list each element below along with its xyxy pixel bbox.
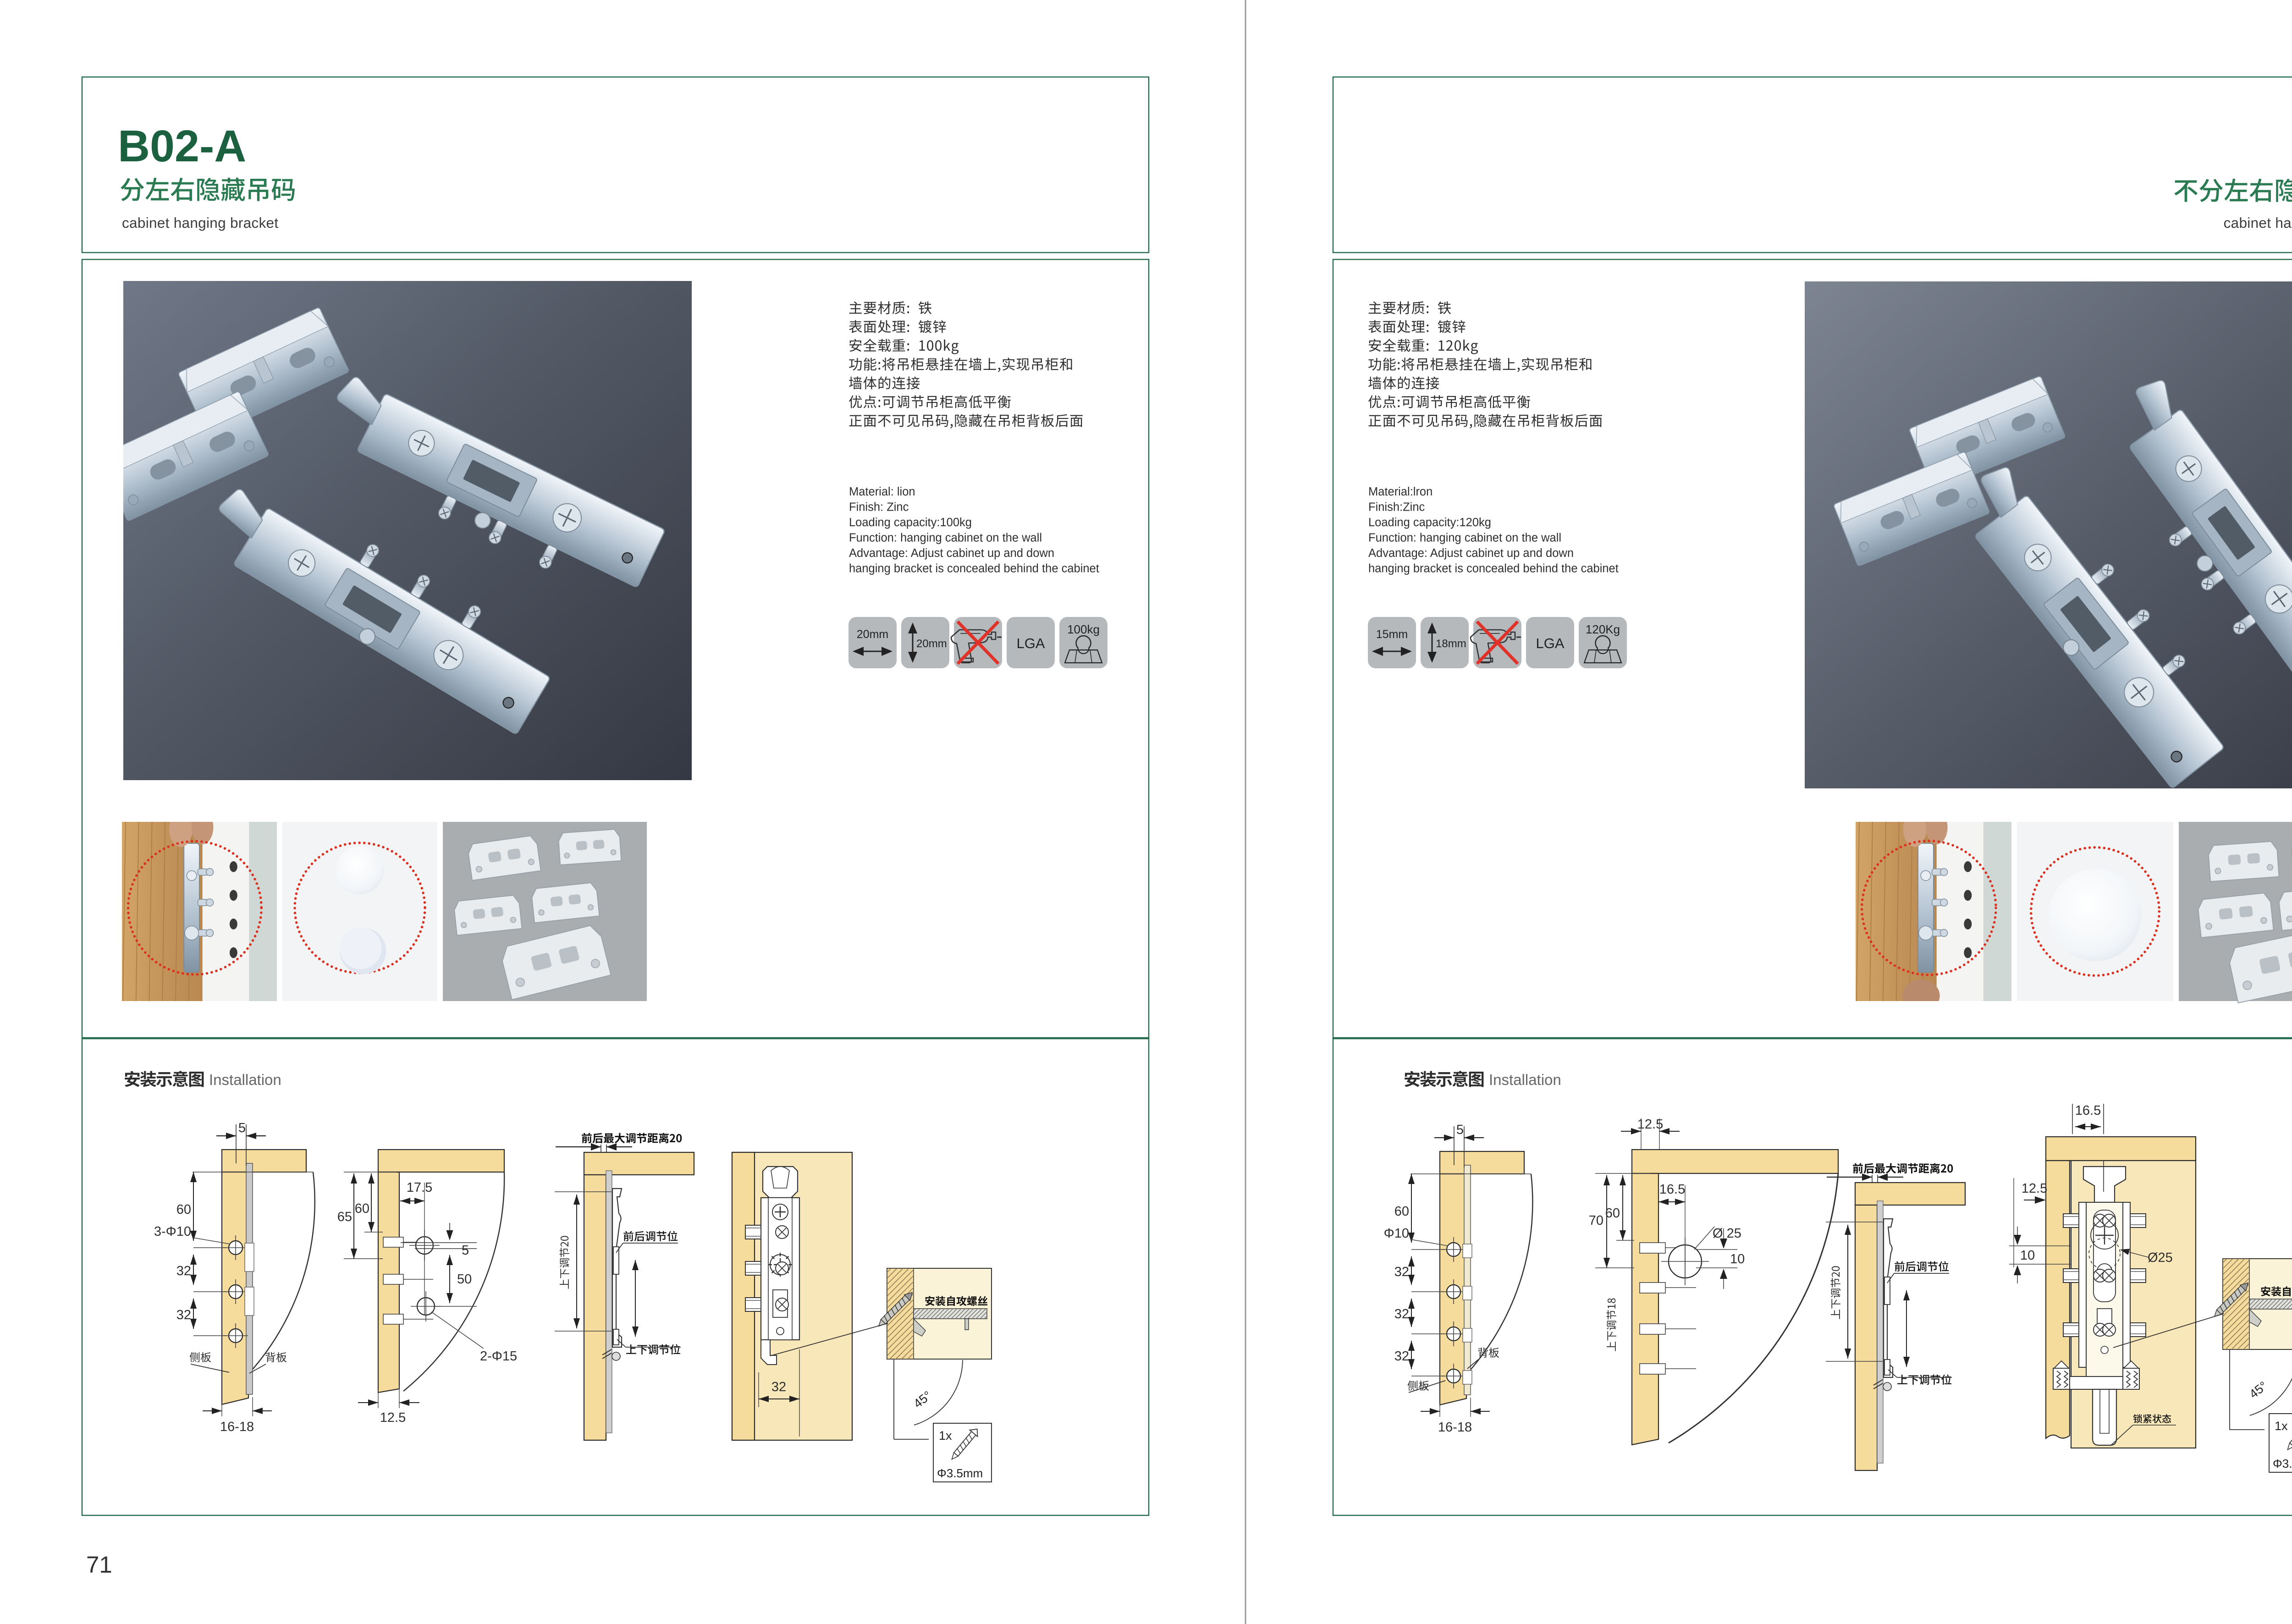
svg-text:B02-A: B02-A <box>118 121 246 171</box>
svg-text:100kg: 100kg <box>1067 622 1100 636</box>
svg-text:32: 32 <box>771 1380 786 1394</box>
svg-text:Installation: Installation <box>1489 1071 1561 1088</box>
svg-text:5: 5 <box>462 1243 469 1258</box>
svg-text:15mm: 15mm <box>1376 628 1408 641</box>
svg-text:60: 60 <box>355 1201 369 1216</box>
svg-text:Advantage: Adjust cabinet up a: Advantage: Adjust cabinet up and down <box>1368 547 1574 560</box>
svg-text:LGA: LGA <box>1016 635 1045 651</box>
svg-text:17.5: 17.5 <box>407 1180 432 1195</box>
svg-text:hanging bracket is concealed b: hanging bracket is concealed behind the … <box>1368 562 1619 575</box>
svg-text:1x: 1x <box>939 1429 952 1442</box>
svg-text:2-Φ15: 2-Φ15 <box>480 1349 517 1364</box>
svg-text:71: 71 <box>86 1552 112 1578</box>
svg-text:3-Φ10: 3-Φ10 <box>154 1224 191 1239</box>
svg-text:Finish: Zinc: Finish: Zinc <box>849 501 909 514</box>
svg-text:32: 32 <box>1394 1349 1409 1364</box>
svg-text:Installation: Installation <box>209 1071 281 1088</box>
svg-text:Φ3.5mm: Φ3.5mm <box>937 1466 983 1480</box>
svg-text:20mm: 20mm <box>857 628 888 641</box>
svg-text:12.5: 12.5 <box>2022 1181 2047 1196</box>
svg-text:Material:lron: Material:lron <box>1368 485 1432 498</box>
svg-text:Φ3.5mm: Φ3.5mm <box>2273 1457 2292 1470</box>
svg-text:18mm: 18mm <box>1436 638 1466 650</box>
svg-text:10: 10 <box>2020 1248 2035 1263</box>
svg-text:32: 32 <box>1394 1265 1409 1279</box>
svg-text:32: 32 <box>176 1264 191 1278</box>
svg-text:Ø25: Ø25 <box>2148 1250 2173 1265</box>
svg-text:70: 70 <box>1589 1213 1603 1228</box>
svg-text:120Kg: 120Kg <box>1586 622 1620 636</box>
svg-text:65: 65 <box>337 1210 352 1224</box>
svg-text:60: 60 <box>1605 1206 1620 1221</box>
svg-text:cabinet hanging bracket: cabinet hanging bracket <box>2224 215 2292 231</box>
svg-text:Material: lion: Material: lion <box>849 485 915 498</box>
svg-text:16.5: 16.5 <box>2075 1103 2101 1118</box>
svg-text:16.5: 16.5 <box>1659 1182 1685 1197</box>
svg-text:Loading capacity:100kg: Loading capacity:100kg <box>849 516 972 529</box>
svg-text:Finish:Zinc: Finish:Zinc <box>1368 501 1425 514</box>
svg-text:LGA: LGA <box>1536 635 1564 651</box>
svg-text:60: 60 <box>1394 1204 1409 1219</box>
svg-text:12.5: 12.5 <box>380 1410 406 1425</box>
svg-text:32: 32 <box>176 1308 191 1322</box>
svg-text:1x: 1x <box>2275 1419 2288 1433</box>
svg-text:5: 5 <box>1456 1123 1464 1137</box>
svg-text:32: 32 <box>1394 1307 1409 1321</box>
svg-text:hanging bracket is concealed b: hanging bracket is concealed behind the … <box>849 562 1099 575</box>
svg-text:60: 60 <box>176 1202 191 1217</box>
svg-text:5: 5 <box>238 1121 246 1135</box>
svg-text:Advantage: Adjust cabinet up a: Advantage: Adjust cabinet up and down <box>849 547 1054 560</box>
svg-text:Φ10: Φ10 <box>1384 1226 1409 1241</box>
svg-text:10: 10 <box>1730 1252 1745 1266</box>
svg-text:Function: hanging cabinet on t: Function: hanging cabinet on the wall <box>1368 532 1561 545</box>
svg-text:cabinet hanging bracket: cabinet hanging bracket <box>122 215 278 231</box>
svg-text:16-18: 16-18 <box>1438 1420 1472 1435</box>
svg-text:50: 50 <box>457 1272 472 1287</box>
svg-text:Function: hanging cabinet on t: Function: hanging cabinet on the wall <box>849 532 1042 545</box>
svg-text:20mm: 20mm <box>916 638 947 650</box>
svg-text:16-18: 16-18 <box>220 1420 254 1434</box>
svg-text:Loading capacity:120kg: Loading capacity:120kg <box>1368 516 1491 529</box>
